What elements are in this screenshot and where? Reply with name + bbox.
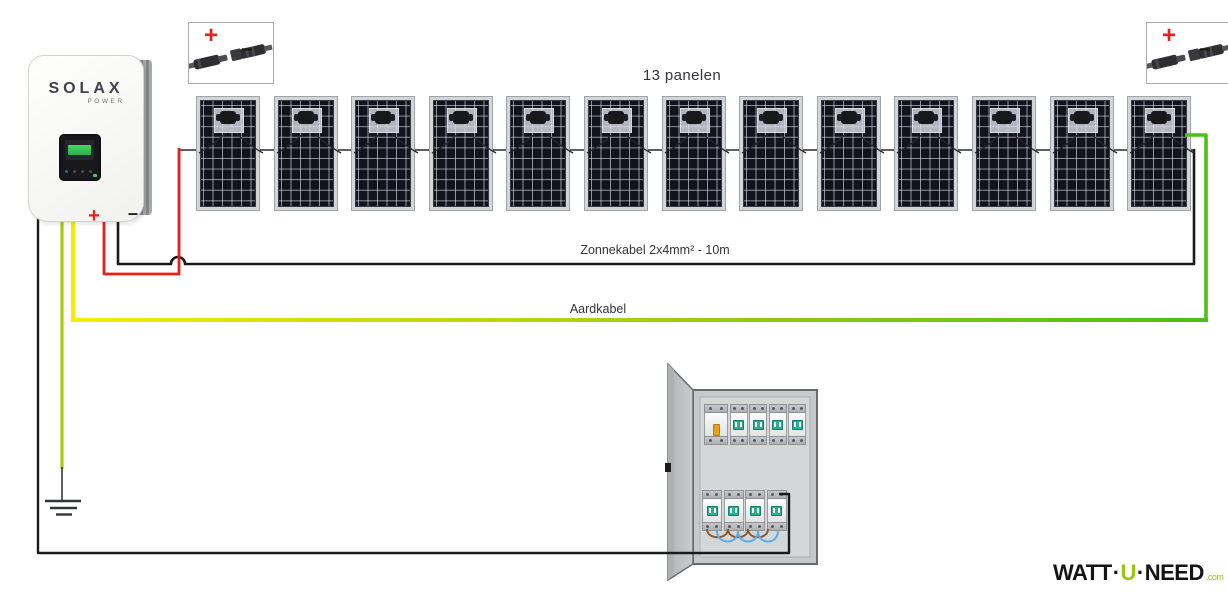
inverter: SOLAX POWER bbox=[28, 55, 180, 220]
panel-count-label: 13 panelen bbox=[582, 67, 782, 84]
inverter-brand-sub: POWER bbox=[69, 98, 143, 105]
inverter-button-icon bbox=[89, 170, 92, 173]
logo-suffix: .com bbox=[1206, 572, 1224, 582]
inverter-brand: SOLAX bbox=[29, 80, 143, 98]
logo-separator: · bbox=[1137, 560, 1144, 586]
inverter-plus-label: + bbox=[84, 205, 104, 228]
inverter-button-icon bbox=[81, 170, 84, 173]
logo-part: U bbox=[1121, 560, 1136, 586]
logo-part: NEED bbox=[1145, 560, 1204, 586]
solar-cable-label: Zonnekabel 2x4mm² - 10m bbox=[530, 243, 780, 257]
wattuneed-logo: WATT · U · NEED .com bbox=[1053, 560, 1223, 586]
inverter-led bbox=[93, 174, 97, 177]
inverter-lcd-bar bbox=[68, 145, 91, 155]
inverter-button-icon bbox=[73, 170, 76, 173]
logo-part: WATT bbox=[1053, 560, 1112, 586]
wiring-layer bbox=[0, 0, 1228, 596]
inverter-display bbox=[59, 134, 101, 181]
inverter-button-icon bbox=[65, 170, 68, 173]
solar-wiring-diagram: SOLAX POWER + – bbox=[0, 0, 1228, 596]
logo-separator: · bbox=[1113, 560, 1120, 586]
ground-cable-label: Aardkabel bbox=[498, 302, 698, 316]
inverter-body: SOLAX POWER bbox=[28, 55, 144, 222]
inverter-screen bbox=[65, 140, 94, 160]
ground-cable-right bbox=[1185, 135, 1206, 321]
inverter-minus-label: – bbox=[124, 203, 142, 224]
